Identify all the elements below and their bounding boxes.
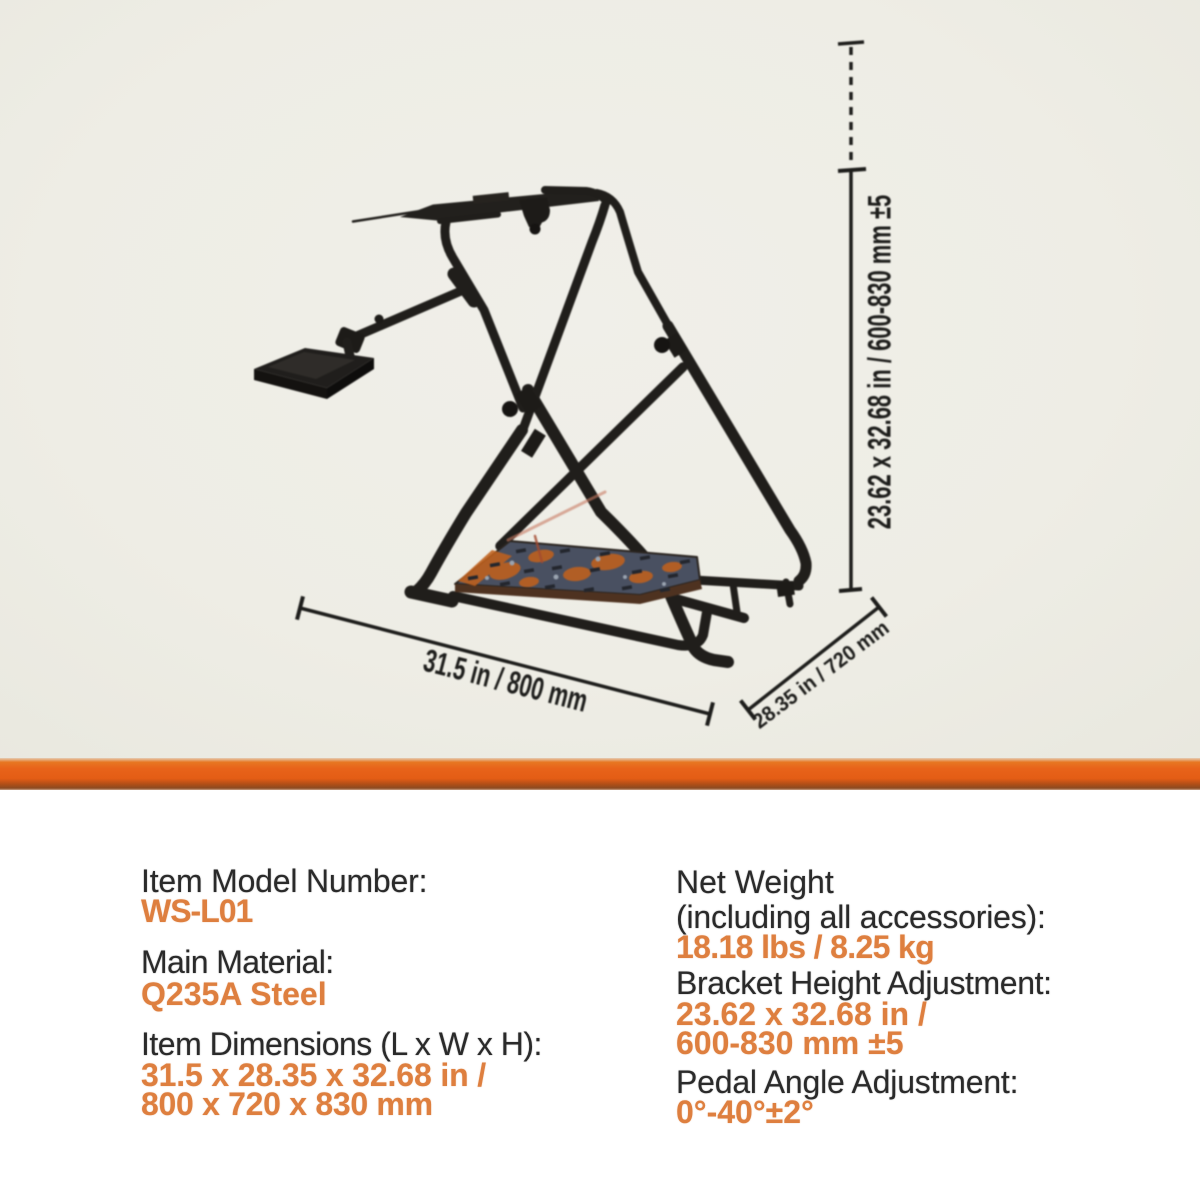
svg-text:28.35 in / 720 mm: 28.35 in / 720 mm (748, 616, 893, 734)
svg-text:31.5 in / 800 mm: 31.5 in / 800 mm (420, 642, 592, 719)
svg-text:23.62 x 32.68 in / 600-830 mm: 23.62 x 32.68 in / 600-830 mm ±5 (861, 195, 897, 530)
